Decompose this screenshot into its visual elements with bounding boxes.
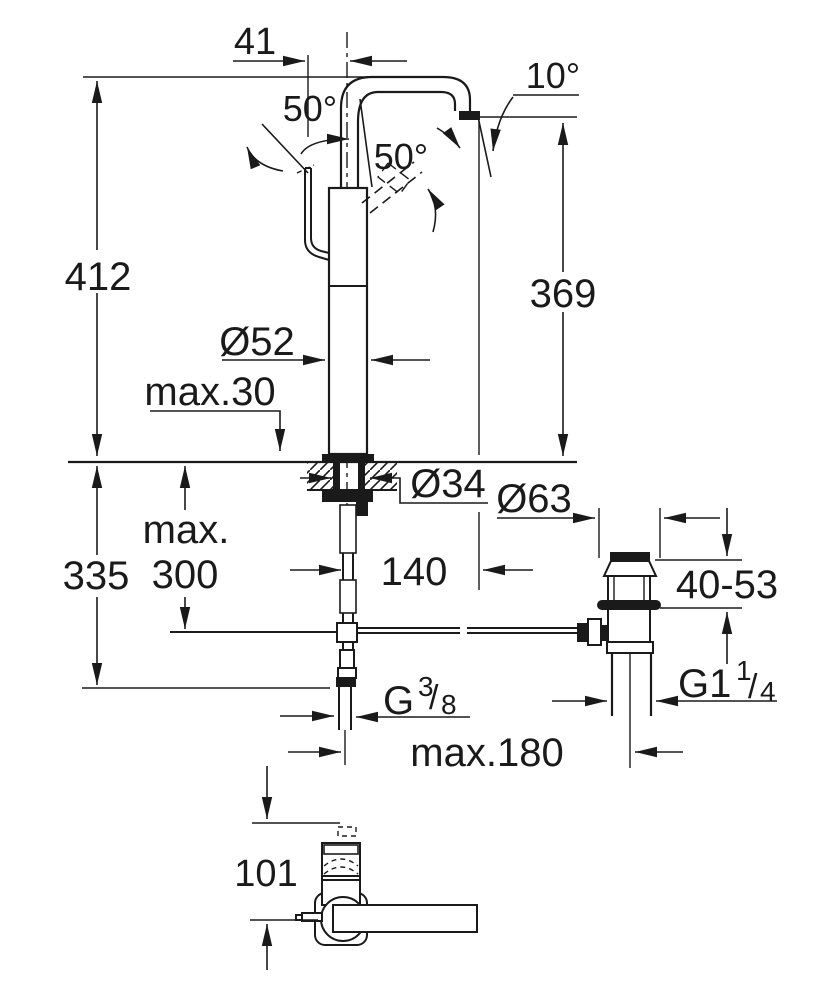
dim-label-41: 41 [234,21,276,63]
dim-spout-height-369: 369 [530,123,597,456]
top-view-spout-tip-dash [338,827,356,836]
drain-plug-knob [610,552,650,561]
hose-nut [336,677,356,687]
dim-label-max30: max.30 [144,370,275,414]
shank-wall-right [358,462,365,490]
thread-label-g1: G1 [678,662,731,706]
dim-swivel-left-50: 50° [283,88,349,154]
dim-drain-distance-max180: max.180 [288,731,683,775]
thread-label-g: G [383,679,414,723]
supply-hose [339,687,351,730]
shank-wall-left [333,462,340,490]
thread-label-slash: / [748,668,758,706]
dim-label-101: 101 [234,853,297,895]
dim-supply-thread-g38: G 3 / 8 [280,671,470,723]
extension-lines [599,508,660,558]
dim-label-369: 369 [530,272,597,316]
dim-label-40-53: 40-53 [676,563,778,607]
hose-connector-collar [338,668,356,678]
rotation-arrow-right [428,189,436,232]
dim-base-max30: max.30 [144,370,280,451]
tube-section-1 [343,553,353,580]
dim-label-140: 140 [381,550,448,594]
dim-hose-max300: max. 300 [143,466,230,629]
dim-drain-flange-63: Ø63 [496,477,720,558]
dim-drain-thread-g114: G1 1 / 4 [552,655,777,707]
thread-label-denominator: 8 [441,689,457,720]
dim-spout-reach-140: 140 [290,550,533,594]
faucet-dimension-drawing: 41 50° 50° 10° 412 369 Ø52 max.30 335 [0,0,834,1000]
faucet-body [329,188,367,454]
dim-label-o34: Ø34 [410,462,486,506]
rod-side-fitting [356,502,368,516]
rod-clamp-left [577,623,588,642]
mounting-and-supply-hose [322,462,373,765]
dim-label-o63: Ø63 [496,477,572,521]
dim-label-300: 300 [152,553,219,597]
handle-tilted-left-line [262,124,308,173]
dim-label-o52: Ø52 [219,320,295,364]
drain-tailpipe [612,653,651,716]
threaded-rod-lower [340,580,356,613]
dim-deck-thickness-40-53: 40-53 [655,508,778,664]
dim-label-max180: max.180 [410,731,563,775]
dim-spout-angle-10: 10° [437,55,580,177]
dim-swivel-right-50: 50° [374,136,428,177]
top-view-body [322,843,360,905]
rod-clamp-body [588,619,601,645]
leader-arrow-down [150,411,280,451]
thread-label-slash: / [429,679,439,717]
pop-up-rod [357,628,577,633]
angle-arc-left [437,128,460,148]
handle-lever [305,168,329,260]
dim-body-diameter-52: Ø52 [219,320,430,364]
rotation-arrow-left [247,147,283,171]
mounting-locknut [322,490,373,502]
dim-label-50-right: 50° [374,136,428,177]
drain-seal-ring [597,600,661,610]
dim-label-10deg: 10° [526,55,580,96]
threaded-rod-upper [340,505,356,553]
pull-rod-cross-fitting [337,623,357,642]
top-view-handle-lever [333,905,477,932]
dim-label-50-left: 50° [283,88,337,129]
rod-clamp-right [601,625,608,641]
dim-label-max: max. [143,508,230,552]
drain-flange-cone [604,561,656,576]
base-flange [322,454,374,462]
angle-arc-right [493,97,513,151]
top-view-side-stub-cap [296,915,302,920]
countertop-hatch-right [365,463,397,490]
dim-total-height-412: 412 [65,81,132,456]
drain-locknut [607,642,653,653]
countertop-hatch-left [307,463,333,490]
dim-label-412: 412 [65,255,132,299]
spout-swivel-ghost-line [360,99,372,187]
dim-label-335: 335 [63,554,130,598]
faucet-top-view [296,827,477,945]
technical-drawing-page: 41 50° 50° 10° 412 369 Ø52 max.30 335 [0,0,834,1000]
thread-label-denominator: 4 [760,676,776,707]
